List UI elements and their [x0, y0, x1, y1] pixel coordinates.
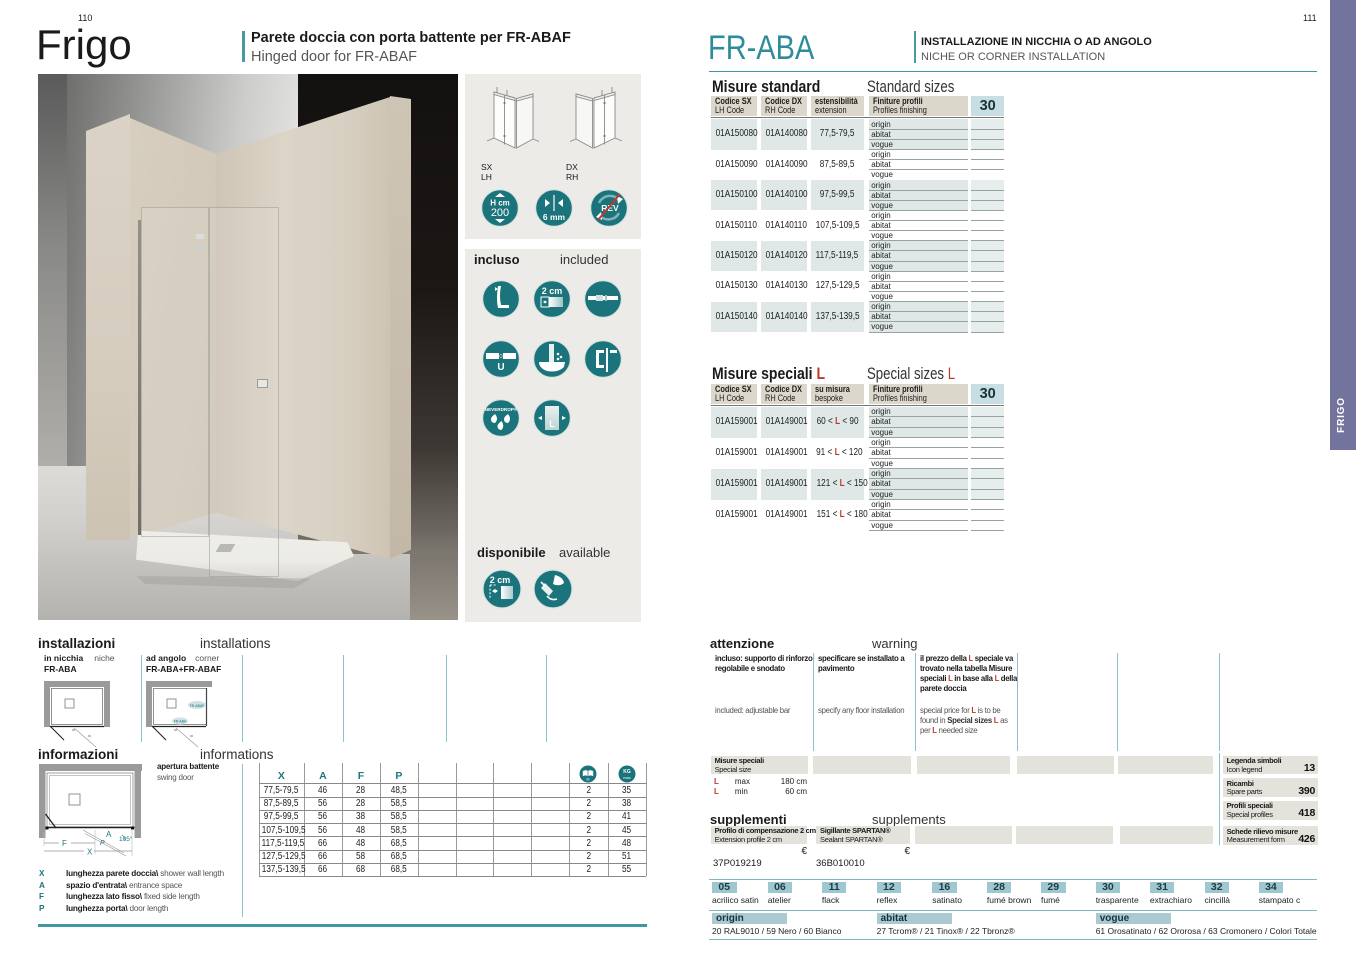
svg-text:X: X	[87, 848, 93, 857]
svg-text:P: P	[100, 840, 105, 847]
svg-text:FR-ABA: FR-ABA	[174, 720, 187, 724]
svg-text:U: U	[497, 362, 504, 373]
svg-text:A: A	[106, 830, 112, 839]
svg-text:lib: lib	[586, 777, 589, 781]
svg-text:2 cm: 2 cm	[542, 286, 563, 296]
svg-text:6 mm: 6 mm	[543, 212, 566, 222]
svg-text:L: L	[549, 419, 555, 429]
svg-text:NEVERDROP®: NEVERDROP®	[485, 406, 518, 412]
svg-text:105°: 105°	[119, 835, 133, 843]
svg-text:200: 200	[491, 207, 509, 219]
svg-text:2 cm: 2 cm	[490, 575, 511, 585]
svg-text:F: F	[62, 839, 67, 848]
svg-text:max: max	[623, 775, 631, 780]
svg-text:FR-ABAF: FR-ABAF	[190, 704, 205, 708]
